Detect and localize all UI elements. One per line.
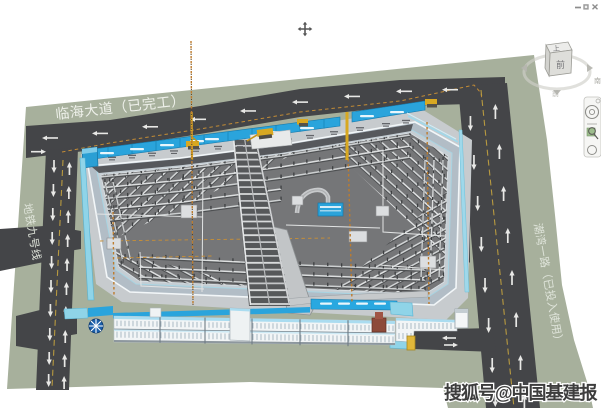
- svg-text:搜狐号@中国基建报: 搜狐号@中国基建报: [444, 382, 598, 403]
- svg-text:南: 南: [594, 76, 601, 85]
- svg-text:前: 前: [556, 59, 565, 70]
- svg-text:前: 前: [552, 89, 559, 98]
